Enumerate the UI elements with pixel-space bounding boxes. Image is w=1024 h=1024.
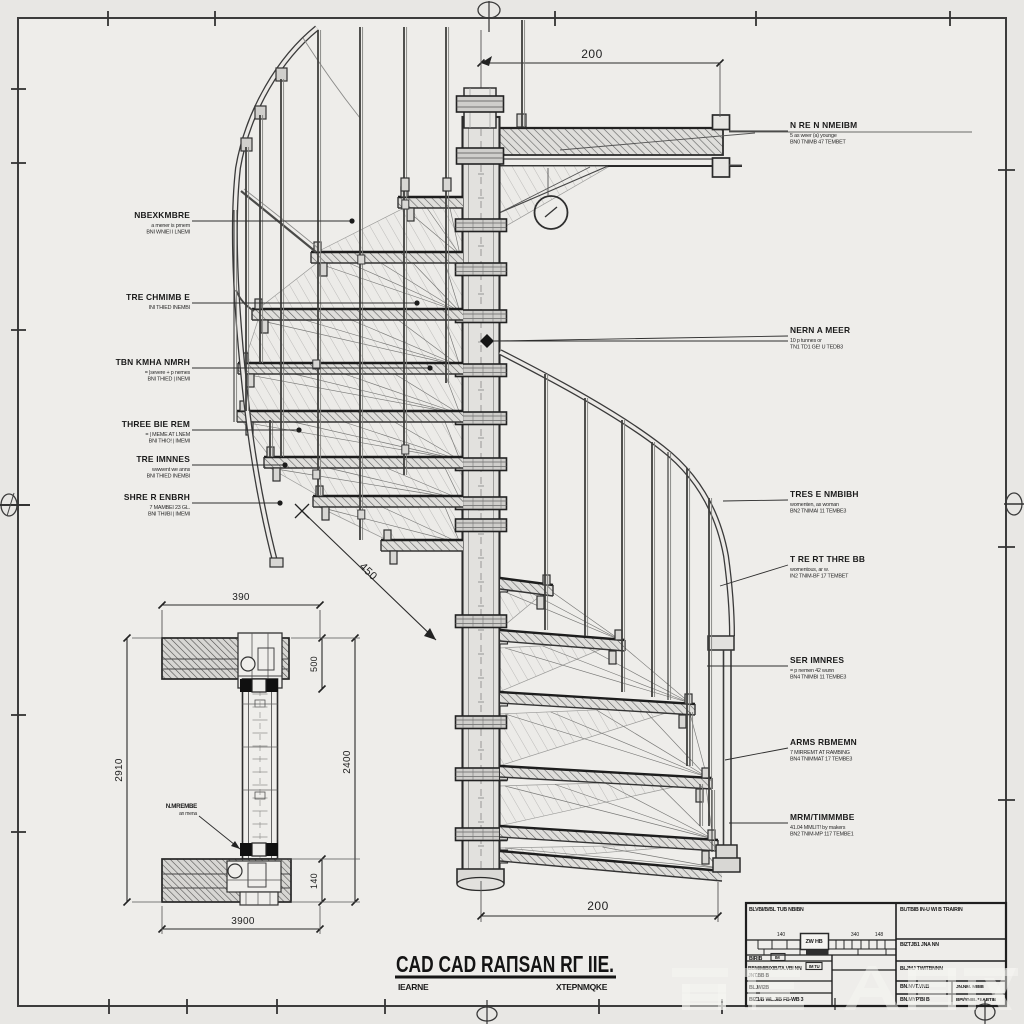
svg-text:BLVBI/B/BL TUB NBIBN: BLVBI/B/BL TUB NBIBN	[749, 907, 804, 913]
svg-text:BIRIB: BIRIB	[749, 956, 763, 962]
svg-text:500: 500	[309, 656, 319, 672]
svg-text:THREE BIE REM: THREE BIE REM	[122, 419, 190, 429]
svg-text:IN2 TNIM-BF 17 TEMBET: IN2 TNIM-BF 17 TEMBET	[790, 574, 849, 580]
svg-text:BN2 TNIM-MP 117 TEMBE1: BN2 TNIM-MP 117 TEMBE1	[790, 832, 854, 838]
svg-text:10 p tunnes or: 10 p tunnes or	[790, 338, 822, 344]
svg-text:BPI/YNIB. * I ABTIB: BPI/YNIB. * I ABTIB	[956, 997, 997, 1003]
svg-text:BN4 TNIMMAT 17 TEMBE3: BN4 TNIMMAT 17 TEMBE3	[790, 757, 852, 763]
svg-text:41.04 MMLIT! by makers: 41.04 MMLIT! by makers	[790, 825, 846, 831]
svg-text:ARMS RBMEMN: ARMS RBMEMN	[790, 737, 857, 747]
svg-text:2400: 2400	[342, 750, 353, 774]
svg-text:390: 390	[232, 592, 250, 603]
svg-text:TRES E NMBIBH: TRES E NMBIBH	[790, 489, 859, 499]
svg-text:BN0 TNIMB 47 TEMBET: BN0 TNIMB 47 TEMBET	[790, 140, 847, 146]
svg-text:an mena: an mena	[179, 811, 197, 817]
svg-text:MRM/TIMMMBE: MRM/TIMMMBE	[790, 812, 855, 822]
svg-text:3900: 3900	[231, 916, 255, 927]
svg-text:200: 200	[587, 899, 609, 913]
svg-text:ZW HB: ZW HB	[805, 939, 822, 945]
svg-text:BN2 TNIMAI 11 TEMBE3: BN2 TNIMAI 11 TEMBE3	[790, 509, 846, 515]
svg-text:BIZTJB1 JNA NN: BIZTJB1 JNA NN	[900, 942, 939, 948]
svg-text:148: 148	[875, 932, 884, 938]
svg-text:200: 200	[581, 47, 603, 61]
svg-text:7 MAMBEI 23 GL.: 7 MAMBEI 23 GL.	[150, 505, 190, 511]
svg-text:NBEXKMBRE: NBEXKMBRE	[134, 210, 190, 220]
svg-text:= |severe + p nemes: = |severe + p nemes	[145, 370, 191, 376]
svg-text:womentous, ar w.: womentous, ar w.	[789, 567, 829, 573]
svg-text:BNI WNIEI I LNEMI: BNI WNIEI I LNEMI	[146, 230, 190, 236]
svg-text:2910: 2910	[114, 758, 125, 782]
svg-text:7 MIRREMT AT RAMBING: 7 MIRREMT AT RAMBING	[790, 750, 850, 756]
svg-text:N.MREMBE: N.MREMBE	[166, 803, 197, 810]
svg-text:wwwent we anns: wwwent we anns	[151, 467, 190, 473]
svg-text:TBN KMHA NMRH: TBN KMHA NMRH	[116, 357, 190, 367]
svg-text:CAD CAD RAΠSAN RΓ IIE.: CAD CAD RAΠSAN RΓ IIE.	[396, 951, 614, 977]
svg-text:IEARNE: IEARNE	[398, 982, 429, 992]
svg-text:BNI THIED INEMBI: BNI THIED INEMBI	[147, 474, 190, 480]
svg-text:IM: IM	[775, 955, 780, 960]
svg-text:BNI THI/BI | IMEMI: BNI THI/BI | IMEMI	[148, 512, 190, 518]
svg-text:BN4 TNIMBI 11 TEMBE3: BN4 TNIMBI 11 TEMBE3	[790, 675, 846, 681]
svg-text:BI./TBIB IN-U WI B TRAIRIN: BI./TBIB IN-U WI B TRAIRIN	[900, 907, 963, 913]
svg-text:TRE IMNNES: TRE IMNNES	[136, 454, 190, 464]
svg-text:5 as weer (a) younge: 5 as weer (a) younge	[790, 133, 837, 139]
svg-text:a mener is prnem: a mener is prnem	[151, 223, 190, 229]
svg-text:NERN A MEER: NERN A MEER	[790, 325, 850, 335]
svg-text:= p nemen 42 wunn: = p nemen 42 wunn	[790, 668, 834, 674]
svg-text:TN1 TD1 GE! U TEDB3: TN1 TD1 GE! U TEDB3	[790, 345, 843, 351]
svg-text:SHRE R ENBRH: SHRE R ENBRH	[124, 492, 190, 502]
svg-text:TRE CHMIMB E: TRE CHMIMB E	[126, 292, 190, 302]
svg-text:BNI THIED | INEMI: BNI THIED | INEMI	[147, 377, 190, 383]
svg-text:= | MEME AT LNEM: = | MEME AT LNEM	[145, 432, 190, 438]
svg-text:IM TU: IM TU	[809, 964, 820, 969]
svg-text:140: 140	[777, 932, 786, 938]
svg-text:womenten, as woman: womenten, as woman	[789, 502, 839, 508]
svg-text:INI THIED INEMBI: INI THIED INEMBI	[149, 305, 190, 311]
svg-text:SER IMNRES: SER IMNRES	[790, 655, 844, 665]
svg-text:340: 340	[851, 932, 860, 938]
svg-text:BNI THIO! | IMEMI: BNI THIO! | IMEMI	[149, 439, 190, 445]
svg-text:XTEPNMQKE: XTEPNMQKE	[556, 982, 608, 992]
svg-text:140: 140	[309, 873, 319, 889]
svg-text:T RE RT THRE BB: T RE RT THRE BB	[790, 554, 865, 564]
svg-text:N RE N NMEIBM: N RE N NMEIBM	[790, 120, 857, 130]
